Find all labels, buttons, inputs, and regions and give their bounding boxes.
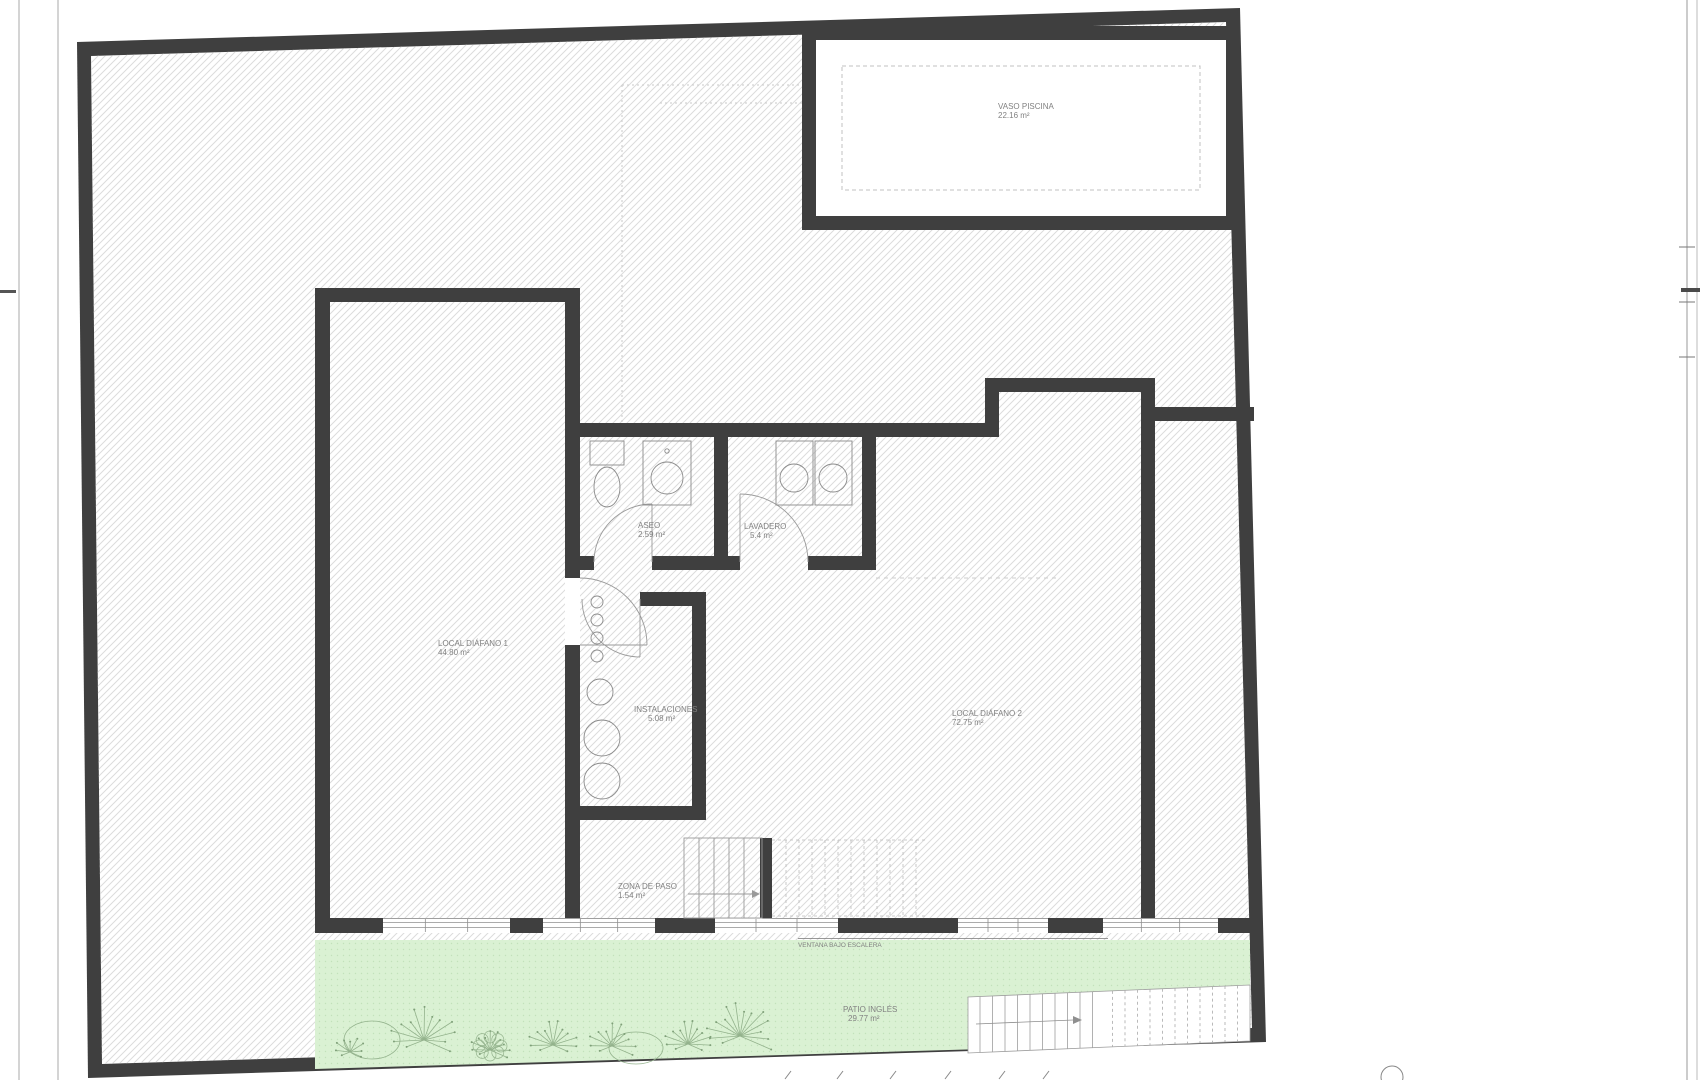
floor-plan-sheet: VASO PISCINA 22.16 m² VENTANA BAJO ESCAL… xyxy=(0,0,1700,1080)
detail-reference-circle xyxy=(1381,1066,1403,1080)
lavadero-area: 5.4 m² xyxy=(750,531,773,540)
ld1-label: LOCAL DIÁFANO 1 xyxy=(438,639,509,648)
exterior-stairs xyxy=(968,985,1250,1053)
ld2-label: LOCAL DIÁFANO 2 xyxy=(952,709,1023,718)
pool-area: 22.16 m² xyxy=(998,111,1030,120)
exterior-stairs-slab xyxy=(968,985,1250,1053)
aseo-area: 2.59 m² xyxy=(638,530,665,539)
patio-label: PATIO INGLÉS xyxy=(843,1005,897,1014)
door-opening-ld1 xyxy=(565,578,580,645)
floor-plan-drawing: VASO PISCINA 22.16 m² VENTANA BAJO ESCAL… xyxy=(0,0,1700,1080)
pool-label: VASO PISCINA xyxy=(998,102,1055,111)
instalaciones-area: 5.08 m² xyxy=(648,714,675,723)
ld2-area: 72.75 m² xyxy=(952,718,984,727)
zona-de-paso-label: ZONA DE PASO xyxy=(618,882,677,891)
aseo-label: ASEO xyxy=(638,521,660,530)
pool: VASO PISCINA 22.16 m² xyxy=(802,26,1240,230)
instalaciones-label: INSTALACIONES xyxy=(634,705,697,714)
patio-area: 29.77 m² xyxy=(848,1014,880,1023)
bottom-dimension-ticks xyxy=(785,1071,1049,1079)
wall-connector-right xyxy=(1155,407,1254,421)
zona-de-paso-area: 1.54 m² xyxy=(618,891,645,900)
ld1-area: 44.80 m² xyxy=(438,648,470,657)
lavadero-label: LAVADERO xyxy=(744,522,786,531)
patio-ingles: VENTANA BAJO ESCALERA PATIO INGLÉS 29.77… xyxy=(315,939,1250,1070)
ventana-bajo-escalera-label: VENTANA BAJO ESCALERA xyxy=(798,942,882,949)
